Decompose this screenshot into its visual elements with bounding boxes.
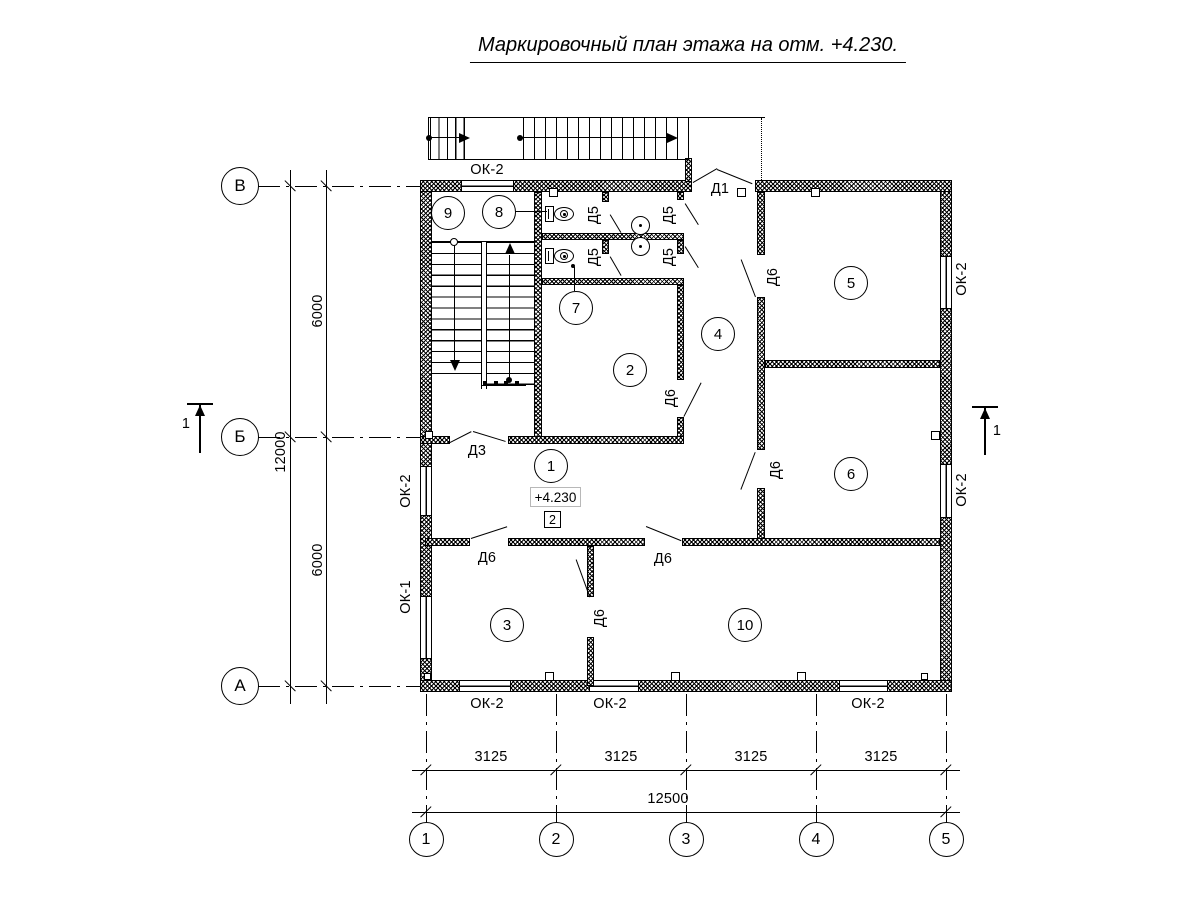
window-label: ОК-2 bbox=[593, 696, 626, 712]
door-swing-d5 bbox=[684, 246, 698, 268]
axis-line-row bbox=[258, 186, 420, 187]
railing-post bbox=[494, 381, 498, 385]
wall-top bbox=[513, 180, 692, 192]
window-left bbox=[420, 467, 432, 515]
wall-room3-room10 bbox=[587, 546, 594, 597]
door-label: Д5 bbox=[661, 206, 677, 224]
window-label: ОК-1 bbox=[398, 580, 414, 613]
dimension-label: 3125 bbox=[864, 749, 897, 765]
wall-corridor-south bbox=[682, 538, 940, 546]
room-number-circle: 2 bbox=[613, 353, 647, 387]
door-swing-d3 bbox=[450, 431, 472, 443]
window-label: ОК-2 bbox=[398, 474, 414, 507]
axis-col-circle: 1 bbox=[409, 822, 444, 857]
stair-direction-line bbox=[522, 137, 670, 138]
pier-notch bbox=[931, 431, 940, 440]
wall-corridor-south bbox=[508, 538, 645, 546]
section-mark-label: 1 bbox=[182, 416, 190, 432]
wall-bottom bbox=[420, 680, 460, 692]
stair-direction-arrow bbox=[459, 133, 470, 143]
wall-room3-room10 bbox=[587, 637, 594, 686]
pier-notch bbox=[545, 672, 554, 681]
axis-line-col bbox=[426, 694, 427, 822]
door-swing-d6 bbox=[740, 259, 756, 297]
sink-icon bbox=[639, 224, 642, 227]
stair-railing bbox=[481, 385, 526, 386]
pier-notch bbox=[921, 673, 928, 680]
door-swing-d3 bbox=[473, 431, 506, 442]
window-label: ОК-2 bbox=[470, 696, 503, 712]
level-badge: 2 bbox=[544, 511, 561, 528]
toilet-icon bbox=[545, 248, 554, 264]
axis-col-circle: 3 bbox=[669, 822, 704, 857]
window-right bbox=[940, 465, 952, 517]
stair-direction-line bbox=[454, 245, 455, 360]
stair-start-post bbox=[450, 238, 458, 246]
axis-line-col bbox=[946, 694, 947, 822]
pier-notch bbox=[797, 672, 806, 681]
door-label: Д6 bbox=[478, 550, 496, 566]
door-label: Д6 bbox=[768, 461, 784, 479]
axis-col-circle: 2 bbox=[539, 822, 574, 857]
window-label: ОК-2 bbox=[954, 262, 970, 295]
wall-room5-room6 bbox=[765, 360, 940, 368]
door-swing-d6 bbox=[471, 526, 508, 539]
window-bottom bbox=[460, 680, 510, 692]
wall-top bbox=[755, 180, 952, 192]
section-mark-label: 1 bbox=[993, 423, 1001, 439]
door-label: Д3 bbox=[468, 443, 486, 459]
wall-stairwell bbox=[534, 192, 542, 444]
stair-start-dot bbox=[426, 135, 432, 141]
door-label: Д6 bbox=[663, 389, 679, 407]
elevation-mark: +4.230 bbox=[530, 487, 581, 507]
wall-left bbox=[420, 515, 432, 597]
pier-notch bbox=[425, 431, 433, 439]
window-bottom bbox=[590, 680, 638, 692]
axis-line-col bbox=[816, 694, 817, 822]
wall-wc-stub bbox=[602, 240, 609, 254]
window-label: ОК-2 bbox=[470, 162, 503, 178]
door-label: Д6 bbox=[654, 551, 672, 567]
stair-flight-left bbox=[432, 242, 481, 374]
sink-icon bbox=[639, 245, 642, 248]
railing-post bbox=[515, 381, 519, 385]
window-label: ОК-2 bbox=[954, 473, 970, 506]
wall-wc-stub bbox=[677, 192, 684, 200]
door-swing-d6 bbox=[683, 382, 701, 416]
window-top bbox=[462, 180, 513, 192]
door-swing-d6 bbox=[646, 526, 682, 541]
toilet-icon bbox=[548, 251, 549, 261]
room-number-circle: 6 bbox=[834, 457, 868, 491]
room-number-circle: 9 bbox=[431, 196, 465, 230]
dimension-label: 12500 bbox=[647, 791, 688, 807]
wall-hall-rooms56 bbox=[757, 192, 765, 255]
wall-entry-jamb bbox=[685, 158, 692, 182]
leader-room8 bbox=[515, 211, 547, 212]
room-number-circle: 5 bbox=[834, 266, 868, 300]
wall-bottom bbox=[638, 680, 840, 692]
exterior-stair-risers bbox=[523, 118, 689, 159]
dimension-label: 3125 bbox=[474, 749, 507, 765]
wall-bottom bbox=[887, 680, 952, 692]
wall-right bbox=[940, 308, 952, 465]
dimension-label: 12000 bbox=[273, 431, 289, 472]
room-number-circle: 8 bbox=[482, 195, 516, 229]
exterior-stair-edge bbox=[428, 159, 689, 160]
stair-direction-arrow bbox=[505, 243, 515, 254]
toilet-icon bbox=[548, 209, 549, 219]
stair-start-dot bbox=[517, 135, 523, 141]
wall-room2-right bbox=[677, 285, 684, 380]
toilet-icon bbox=[563, 213, 566, 216]
door-label: Д5 bbox=[586, 206, 602, 224]
section-mark-arrow bbox=[195, 405, 205, 416]
axis-line-row bbox=[258, 686, 420, 687]
wall-wc-bottom bbox=[542, 278, 684, 285]
window-left bbox=[420, 597, 432, 658]
stair-direction-line bbox=[509, 255, 510, 379]
window-bottom bbox=[840, 680, 887, 692]
door-label: Д5 bbox=[661, 248, 677, 266]
dimension-label: 3125 bbox=[604, 749, 637, 765]
axis-col-circle: 5 bbox=[929, 822, 964, 857]
pier-notch bbox=[811, 188, 820, 197]
wall-top bbox=[420, 180, 462, 192]
room-number-circle: 7 bbox=[559, 291, 593, 325]
wall-hall-rooms56 bbox=[757, 297, 765, 450]
pier-notch bbox=[737, 188, 746, 197]
wall-wc-stub bbox=[677, 240, 684, 254]
door-label: Д6 bbox=[592, 609, 608, 627]
stair-direction-arrow bbox=[450, 360, 460, 371]
dimension-label: 3125 bbox=[734, 749, 767, 765]
door-swing-d6 bbox=[740, 452, 756, 490]
pier-notch bbox=[549, 188, 558, 197]
wall-corridor-south bbox=[425, 538, 470, 546]
door-label: Д1 bbox=[711, 181, 729, 197]
wall-left bbox=[420, 180, 432, 467]
axis-line-col bbox=[556, 694, 557, 822]
toilet-icon bbox=[545, 206, 554, 222]
axis-row-circle: Б bbox=[221, 418, 259, 456]
door-swing-d5 bbox=[609, 256, 621, 276]
door-swing-d5 bbox=[609, 214, 621, 233]
leader-room7 bbox=[571, 264, 575, 268]
leader-room7 bbox=[574, 267, 575, 291]
floor-plan-canvas: Маркировочный план этажа на отм. +4.230. bbox=[0, 0, 1200, 900]
wall-bottom bbox=[510, 680, 590, 692]
exterior-stair-landing-edge bbox=[761, 118, 762, 180]
room-number-circle: 4 bbox=[701, 317, 735, 351]
axis-row-circle: А bbox=[221, 667, 259, 705]
window-label: ОК-2 bbox=[851, 696, 884, 712]
door-label: Д5 bbox=[586, 248, 602, 266]
wall-right bbox=[940, 517, 952, 692]
dimension-label: 6000 bbox=[310, 294, 326, 327]
room-number-circle: 10 bbox=[728, 608, 762, 642]
wall-axis-b bbox=[508, 436, 684, 444]
railing-post bbox=[504, 381, 508, 385]
room-number-circle: 3 bbox=[490, 608, 524, 642]
stair-direction-line bbox=[431, 137, 461, 138]
room-number-circle: 1 bbox=[534, 449, 568, 483]
stair-flight-right bbox=[487, 242, 534, 389]
section-mark-arrow bbox=[980, 408, 990, 419]
page-title: Маркировочный план этажа на отм. +4.230. bbox=[470, 34, 906, 63]
window-right bbox=[940, 257, 952, 308]
door-swing-d5 bbox=[684, 203, 698, 225]
wall-wc-stub bbox=[602, 192, 609, 202]
pier-notch bbox=[671, 672, 680, 681]
wall-wc-mid bbox=[542, 233, 684, 240]
railing-post bbox=[483, 381, 487, 385]
axis-row-circle: В bbox=[221, 167, 259, 205]
axis-col-circle: 4 bbox=[799, 822, 834, 857]
pier-notch bbox=[424, 673, 431, 680]
stair-direction-arrow bbox=[667, 133, 678, 143]
dimension-label: 6000 bbox=[310, 543, 326, 576]
door-label: Д6 bbox=[765, 268, 781, 286]
toilet-icon bbox=[563, 255, 566, 258]
stair-divider bbox=[481, 242, 487, 389]
